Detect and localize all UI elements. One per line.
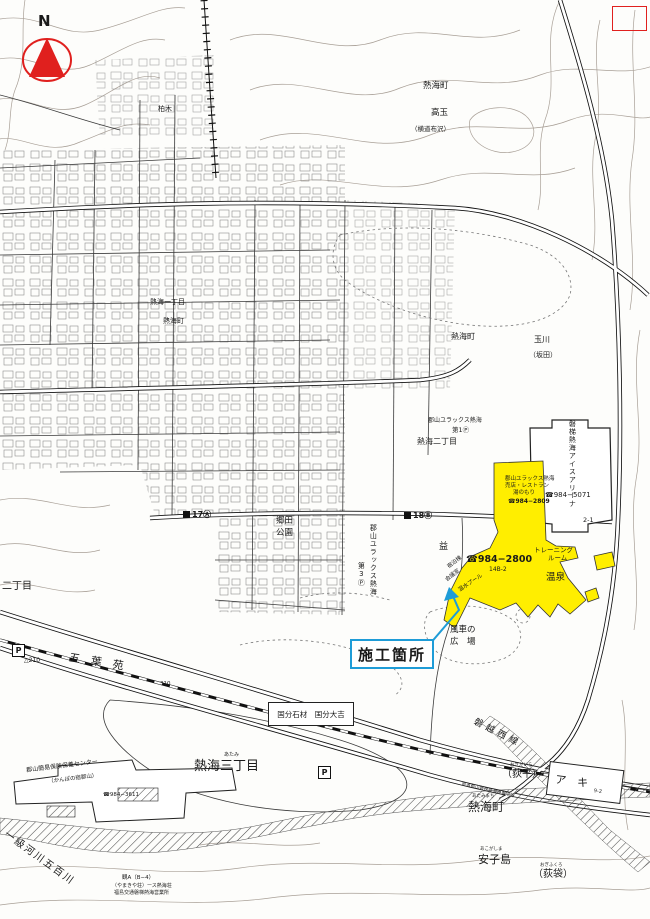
marker-17A: 17Ⓐ	[183, 509, 211, 520]
marker-18B: 18Ⓑ	[404, 510, 432, 521]
map-canvas: N 施工箇所 柏木 熱海町 高玉 （横道布沢） 熱海一丁目 熱海町 熱海町 玉川…	[0, 0, 650, 919]
kokubu-sign: 国分石材 国分大吉	[268, 702, 354, 726]
label-parking1-name: 郡山ユラックス熱海	[428, 418, 482, 424]
label-atami-3chome: 熱海三丁目	[194, 760, 259, 774]
marker-square-icon	[183, 511, 190, 518]
label-parking1-no: 第1Ⓟ	[452, 427, 469, 434]
label-atamimachi-bottom: 熱海町	[468, 801, 504, 814]
label-facility-phone: ☎984−2809	[508, 499, 550, 505]
label-ogifukuro: （荻袋）	[533, 870, 573, 881]
north-arrow-icon	[23, 38, 71, 81]
label-onsen: 温泉	[546, 573, 565, 583]
label-parking3-name: 郡山ユラックス熱海	[369, 524, 376, 604]
label-training-2: ルーム	[548, 555, 567, 562]
benchmark-310: 310	[160, 682, 171, 688]
furigana-atamimachi-b: あたみまち	[472, 795, 495, 800]
label-fusha-2: 広 場	[450, 638, 476, 647]
label-facility-shop: 売店・レストラン	[505, 484, 549, 490]
label-parking3-no: 第3Ⓟ	[357, 562, 364, 596]
label-atamimachi-center: 熱海町	[451, 333, 475, 341]
label-facility-name: 郡山ユラックス熱海	[505, 477, 554, 483]
marker-square-icon	[404, 512, 411, 519]
label-note-1: 観A（B−4）	[122, 876, 154, 882]
parking-icon: P	[12, 644, 25, 657]
red-legend-box	[612, 6, 647, 31]
label-goda-1: 郷田	[276, 517, 293, 526]
label-ogidaira: （荻平）	[502, 770, 542, 781]
label-ice-arena: 磐梯熱海アイスアリーナ	[568, 420, 575, 532]
label-atamimachi-top: 熱海町	[423, 82, 449, 91]
label-facility-bath: 湯のもり	[513, 491, 535, 497]
furigana-ogidaira: おぎだいら	[510, 764, 533, 769]
label-takatama: 高玉	[431, 109, 448, 118]
label-atamimachi-mid: 熱海町	[163, 318, 184, 325]
furigana-atami3: あたみ	[224, 753, 239, 758]
label-nichome: 二丁目	[2, 582, 32, 593]
label-fusha-1: 風車の	[450, 626, 476, 635]
label-takatama-sub: （横道布沢）	[411, 126, 450, 133]
construction-site-callout: 施工箇所	[350, 639, 434, 669]
label-kampo-phone: ☎984−3611	[103, 793, 139, 799]
label-arena-phone: ☎984−5071	[545, 492, 591, 499]
label-sakata: （坂田）	[529, 352, 557, 359]
label-atami-1chome: 熱海一丁目	[150, 299, 185, 306]
parking-icon: P	[318, 766, 331, 779]
label-training-1: トレーニング	[534, 547, 573, 554]
map-base-graphics	[0, 0, 650, 919]
benchmark-210: △210	[24, 658, 40, 664]
label-aki-lot: 9-2	[593, 789, 602, 795]
label-goda-2: 公園	[276, 529, 293, 538]
label-note-3: 福島交通磐梯熱海営業所	[114, 891, 169, 896]
label-main-phone: ☎984−2800	[466, 555, 532, 565]
north-label: N	[38, 12, 51, 30]
label-atami-2chome: 熱海二丁目	[417, 438, 457, 446]
urban-blocks	[0, 55, 455, 615]
label-kashiwagi: 柏木	[158, 106, 172, 113]
map-symbol-masu: 益	[439, 543, 448, 552]
furigana-ogifukuro: おぎふくろ	[540, 864, 563, 869]
label-main-lot: 14B-2	[489, 567, 507, 573]
label-lot-2-1: 2-1	[583, 517, 594, 524]
label-akogashima: 安子島	[478, 854, 511, 866]
marker-18B-label: 18Ⓑ	[413, 510, 432, 521]
label-note-2: （やまきや荘）ース熱海荘	[112, 884, 172, 889]
label-tamagawa: 玉川	[534, 336, 550, 344]
furigana-akogashima: あこがしま	[480, 848, 503, 853]
marker-17A-label: 17Ⓐ	[192, 509, 211, 520]
